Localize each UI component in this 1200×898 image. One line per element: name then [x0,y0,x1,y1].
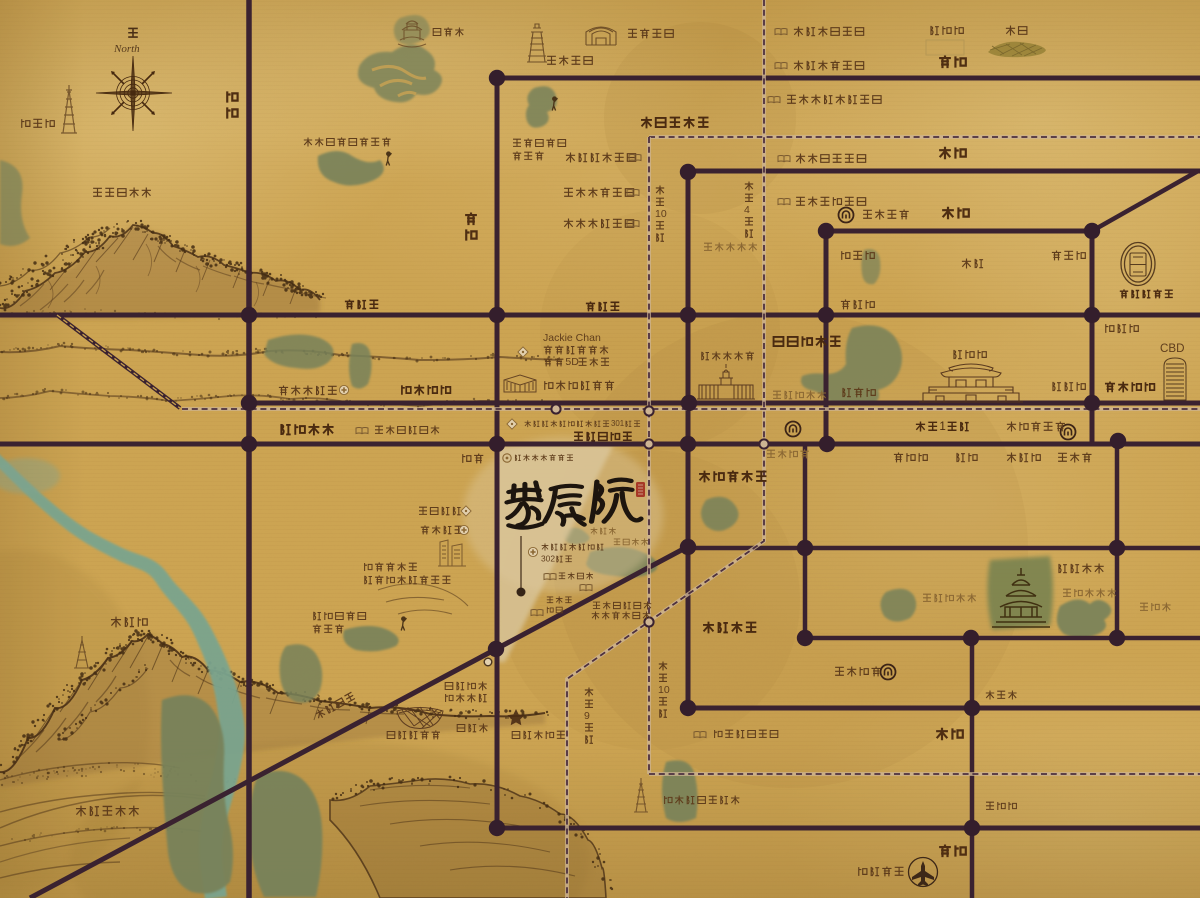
svg-text:4: 4 [744,204,750,216]
svg-text:10: 10 [658,684,670,696]
svg-text:Jackie Chan: Jackie Chan [543,332,601,344]
svg-text:302: 302 [541,554,555,564]
svg-text:CBD: CBD [1160,342,1184,355]
svg-text:North: North [113,43,140,55]
svg-text:10: 10 [655,208,667,220]
svg-text:5D: 5D [565,356,579,368]
svg-text:9: 9 [584,710,590,722]
svg-text:301: 301 [611,419,624,428]
svg-text:1: 1 [939,420,945,433]
